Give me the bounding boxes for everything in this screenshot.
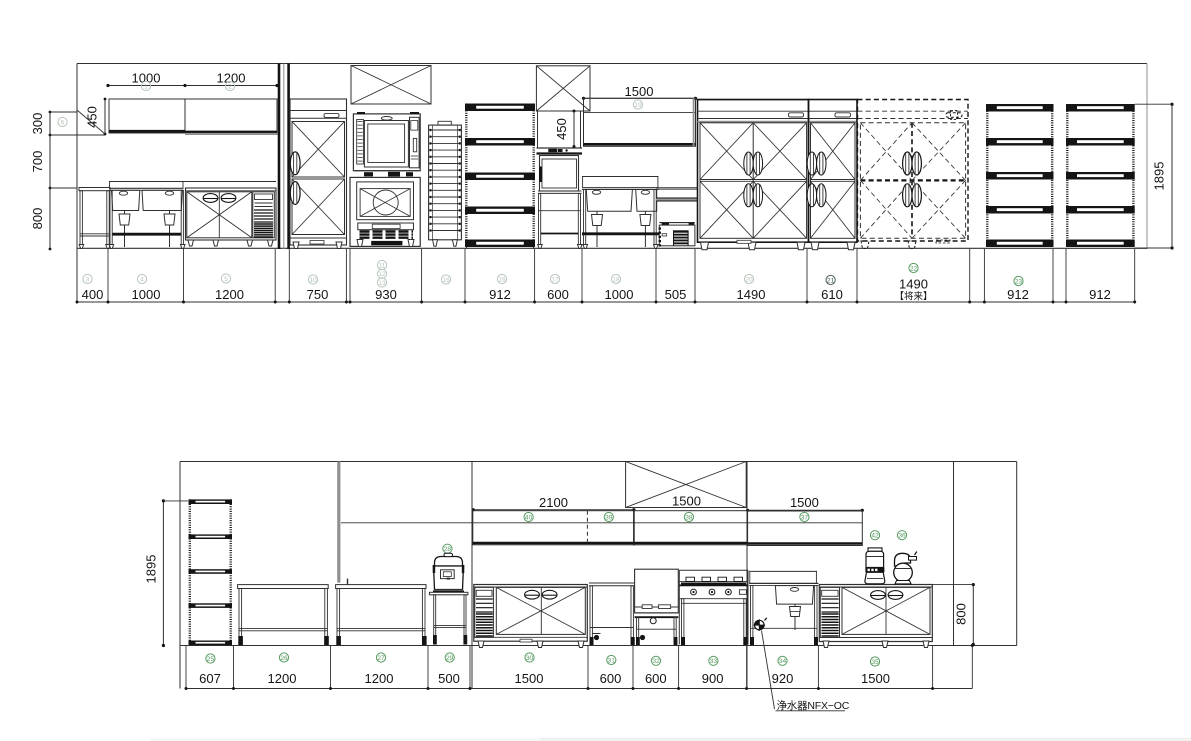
svg-text:17: 17 [551, 276, 559, 283]
svg-text:1500: 1500 [625, 84, 654, 99]
svg-text:12: 12 [378, 271, 386, 278]
svg-text:10: 10 [309, 277, 317, 284]
svg-text:610: 610 [821, 287, 843, 302]
svg-text:22: 22 [910, 265, 918, 272]
svg-text:800: 800 [954, 603, 969, 625]
svg-text:450: 450 [85, 106, 100, 128]
svg-text:11: 11 [379, 262, 386, 269]
svg-text:3: 3 [86, 276, 90, 283]
svg-text:1000: 1000 [605, 287, 634, 302]
svg-text:1490: 1490 [899, 277, 928, 292]
svg-text:1200: 1200 [215, 287, 244, 302]
svg-text:38: 38 [685, 514, 693, 521]
svg-text:35: 35 [871, 659, 879, 666]
svg-text:【将来】: 【将来】 [894, 292, 932, 303]
svg-text:900: 900 [702, 671, 724, 686]
svg-text:27: 27 [377, 655, 385, 662]
svg-text:1200: 1200 [365, 671, 394, 686]
svg-text:32: 32 [652, 658, 660, 665]
svg-text:34: 34 [779, 658, 787, 665]
svg-text:19: 19 [634, 102, 642, 109]
svg-text:浄水器NFX−OC: 浄水器NFX−OC [777, 699, 850, 712]
svg-text:1500: 1500 [790, 495, 819, 510]
svg-text:500: 500 [438, 671, 460, 686]
svg-text:1200: 1200 [268, 671, 297, 686]
svg-text:600: 600 [547, 287, 569, 302]
svg-text:26: 26 [280, 655, 288, 662]
svg-text:1490: 1490 [737, 287, 766, 302]
svg-text:1000: 1000 [132, 287, 161, 302]
svg-text:920: 920 [772, 671, 794, 686]
svg-text:5: 5 [224, 276, 228, 283]
svg-text:2100: 2100 [539, 495, 568, 510]
svg-text:18: 18 [612, 276, 620, 283]
svg-text:4: 4 [140, 276, 144, 283]
svg-text:912: 912 [1007, 287, 1029, 302]
svg-text:800: 800 [30, 208, 45, 230]
svg-text:6: 6 [61, 119, 65, 126]
svg-text:2: 2 [228, 83, 232, 90]
svg-text:21: 21 [827, 277, 835, 284]
svg-text:30: 30 [526, 655, 534, 662]
svg-text:1895: 1895 [1152, 162, 1167, 191]
svg-text:33: 33 [710, 658, 718, 665]
svg-text:300: 300 [30, 113, 45, 135]
svg-text:29: 29 [446, 655, 454, 662]
svg-text:912: 912 [1089, 287, 1111, 302]
svg-text:505: 505 [665, 287, 687, 302]
svg-text:15: 15 [442, 277, 450, 284]
svg-text:42: 42 [871, 533, 879, 540]
svg-text:1500: 1500 [672, 494, 701, 509]
svg-text:700: 700 [30, 151, 45, 173]
svg-text:750: 750 [307, 287, 329, 302]
svg-text:37: 37 [801, 514, 809, 521]
svg-text:450: 450 [554, 118, 569, 140]
svg-text:600: 600 [645, 671, 667, 686]
svg-text:930: 930 [375, 287, 397, 302]
svg-text:28: 28 [444, 546, 452, 553]
svg-text:13: 13 [378, 280, 386, 287]
svg-text:600: 600 [600, 671, 622, 686]
svg-text:400: 400 [82, 287, 104, 302]
svg-text:1500: 1500 [861, 671, 890, 686]
svg-text:36: 36 [898, 533, 906, 540]
svg-text:23: 23 [1015, 278, 1023, 285]
svg-text:16: 16 [498, 276, 506, 283]
svg-text:25: 25 [207, 656, 215, 663]
svg-text:607: 607 [199, 671, 221, 686]
svg-text:39: 39 [605, 514, 613, 521]
svg-text:31: 31 [608, 657, 616, 664]
svg-text:1500: 1500 [515, 671, 544, 686]
svg-text:1895: 1895 [144, 555, 159, 584]
svg-text:40: 40 [525, 514, 533, 521]
svg-text:20: 20 [745, 276, 753, 283]
svg-text:912: 912 [489, 287, 511, 302]
svg-text:1: 1 [144, 83, 148, 90]
